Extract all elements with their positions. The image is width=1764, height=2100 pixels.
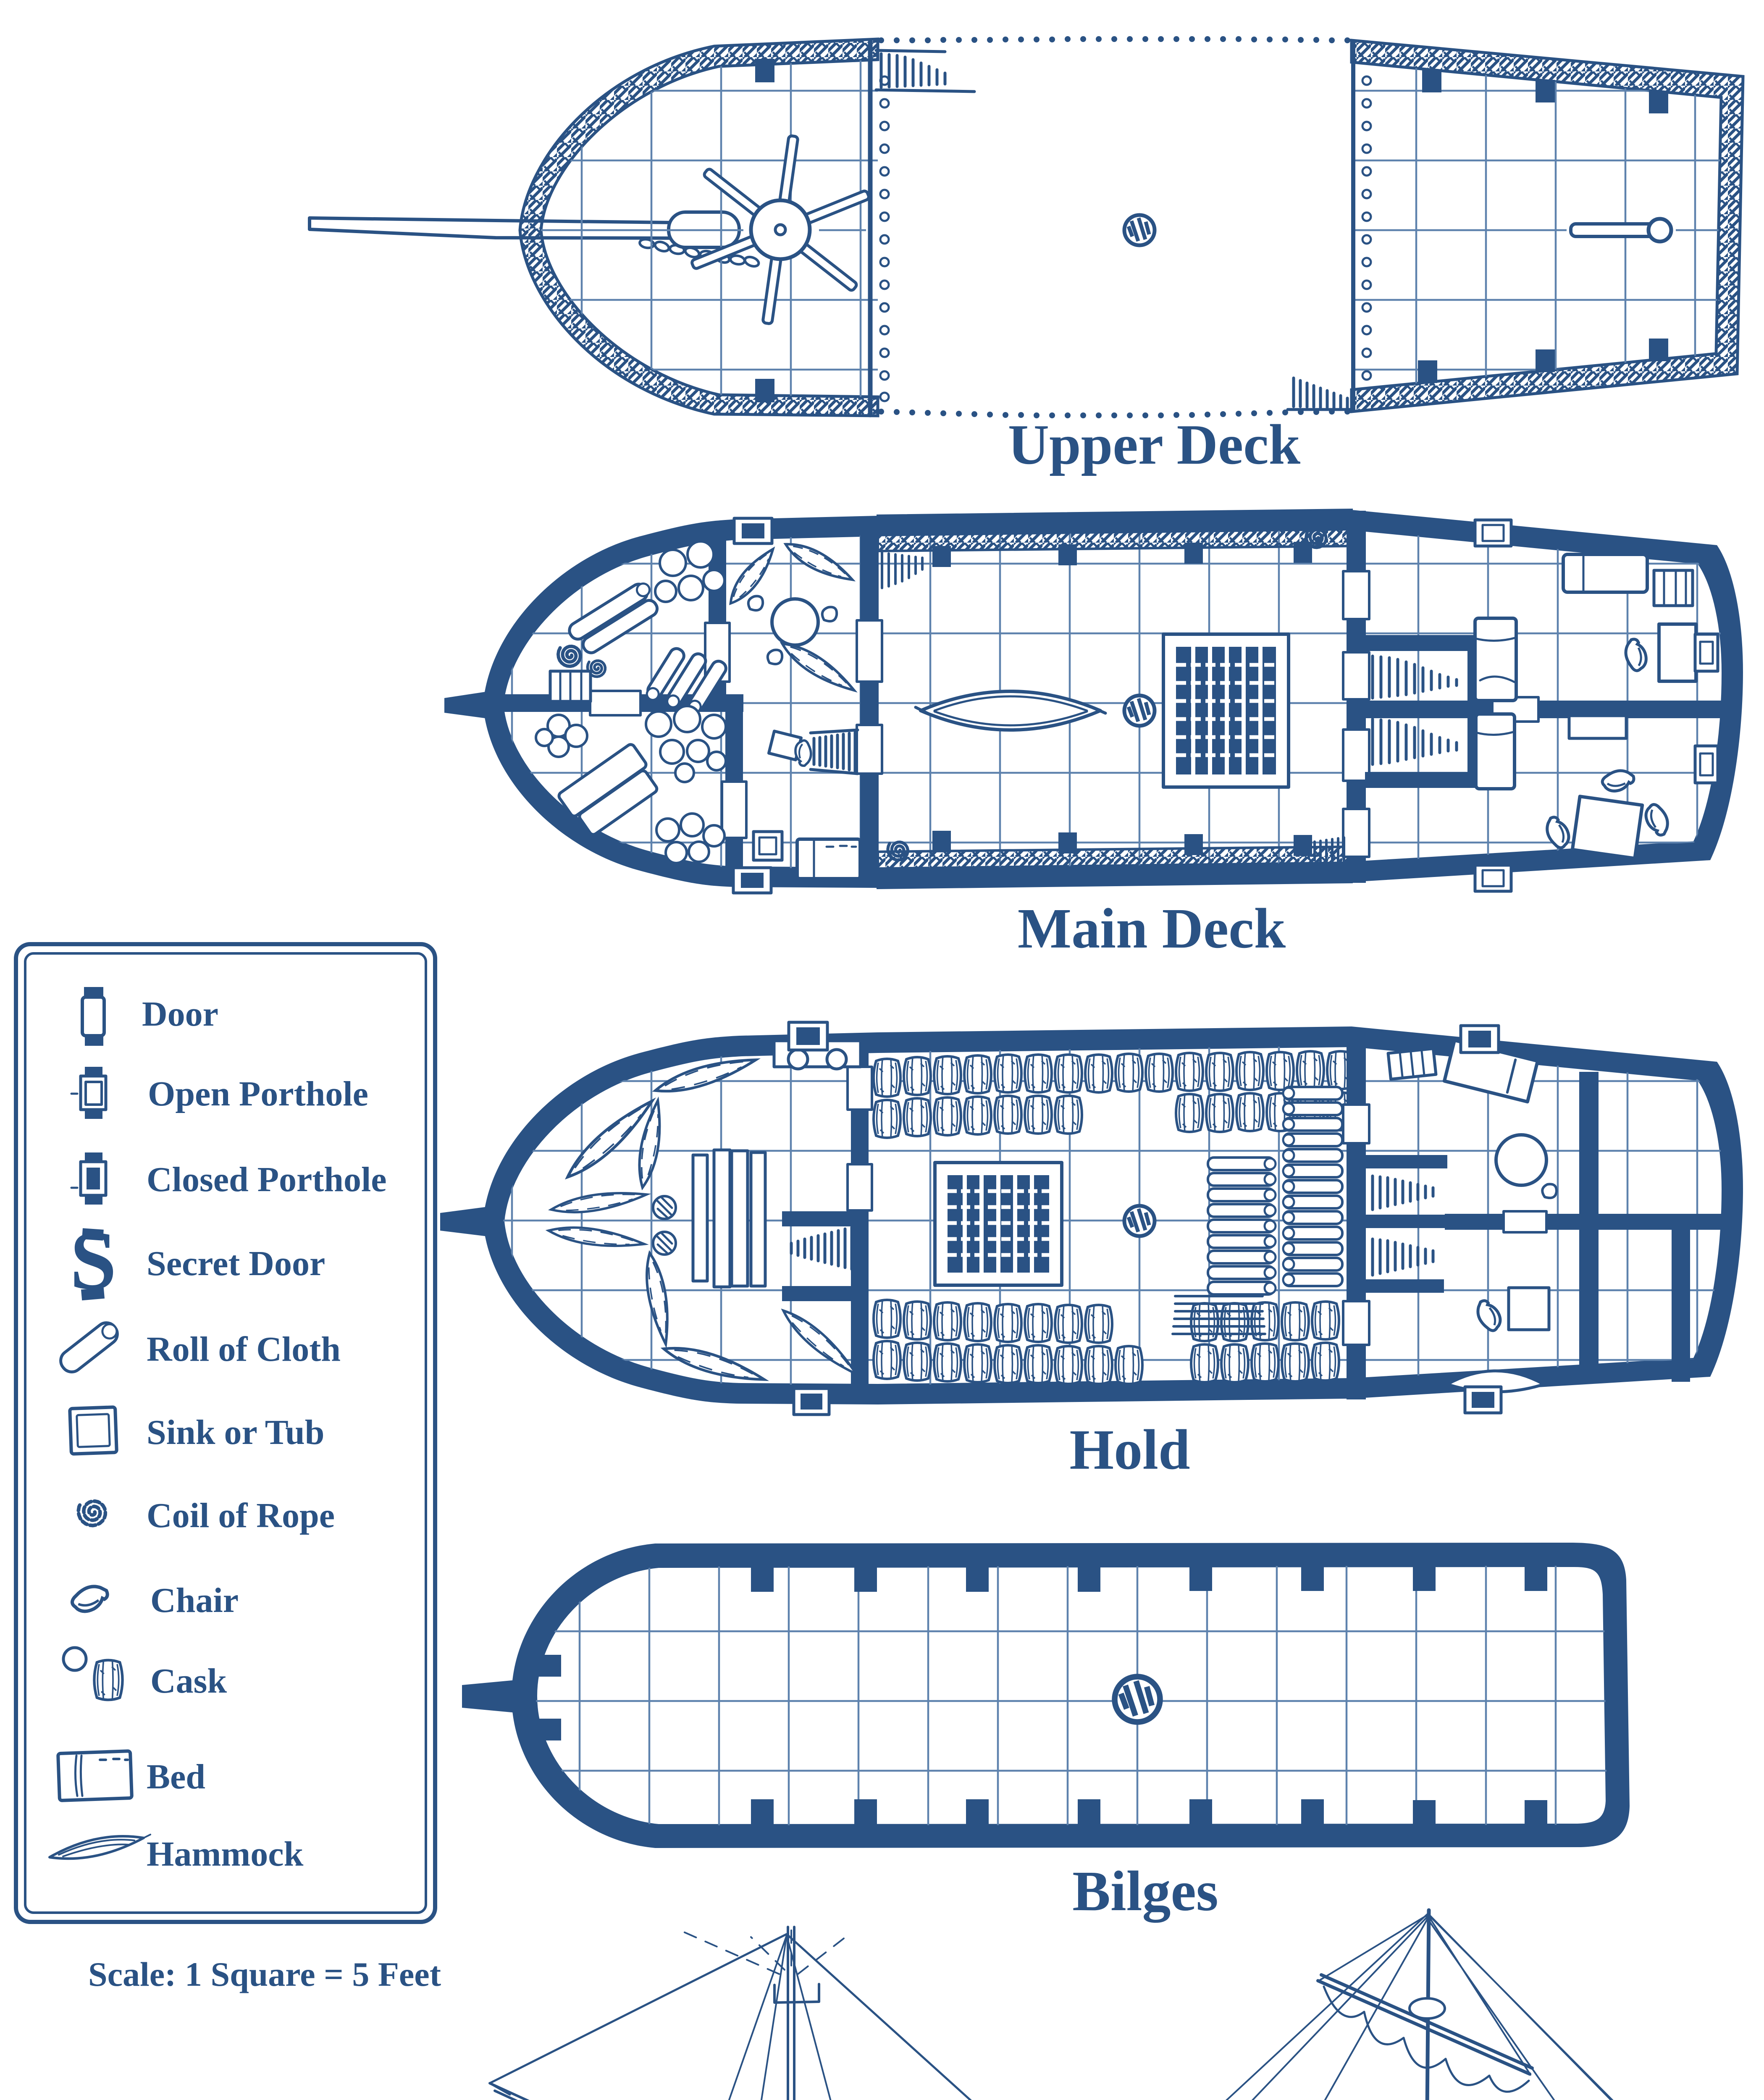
svg-text:Coil of Rope: Coil of Rope [147,1496,335,1535]
svg-text:Bed: Bed [147,1757,205,1796]
svg-text:Secret Door: Secret Door [147,1244,325,1283]
svg-text:Door: Door [142,995,218,1034]
svg-text:Scale: 1 Square = 5 Feet: Scale: 1 Square = 5 Feet [88,1955,441,1993]
svg-text:Cask: Cask [150,1662,227,1701]
svg-text:Roll of Cloth: Roll of Cloth [147,1330,341,1369]
svg-text:Upper Deck: Upper Deck [1008,413,1301,476]
svg-text:Chair: Chair [150,1581,239,1620]
svg-text:Hold: Hold [1069,1418,1190,1481]
svg-text:Hammock: Hammock [147,1835,304,1874]
svg-text:Bilges: Bilges [1072,1860,1218,1923]
svg-text:Sink or Tub: Sink or Tub [147,1413,325,1452]
svg-text:Main Deck: Main Deck [1018,897,1286,960]
svg-text:Open Porthole: Open Porthole [148,1074,368,1113]
svg-text:Closed Porthole: Closed Porthole [147,1160,387,1199]
